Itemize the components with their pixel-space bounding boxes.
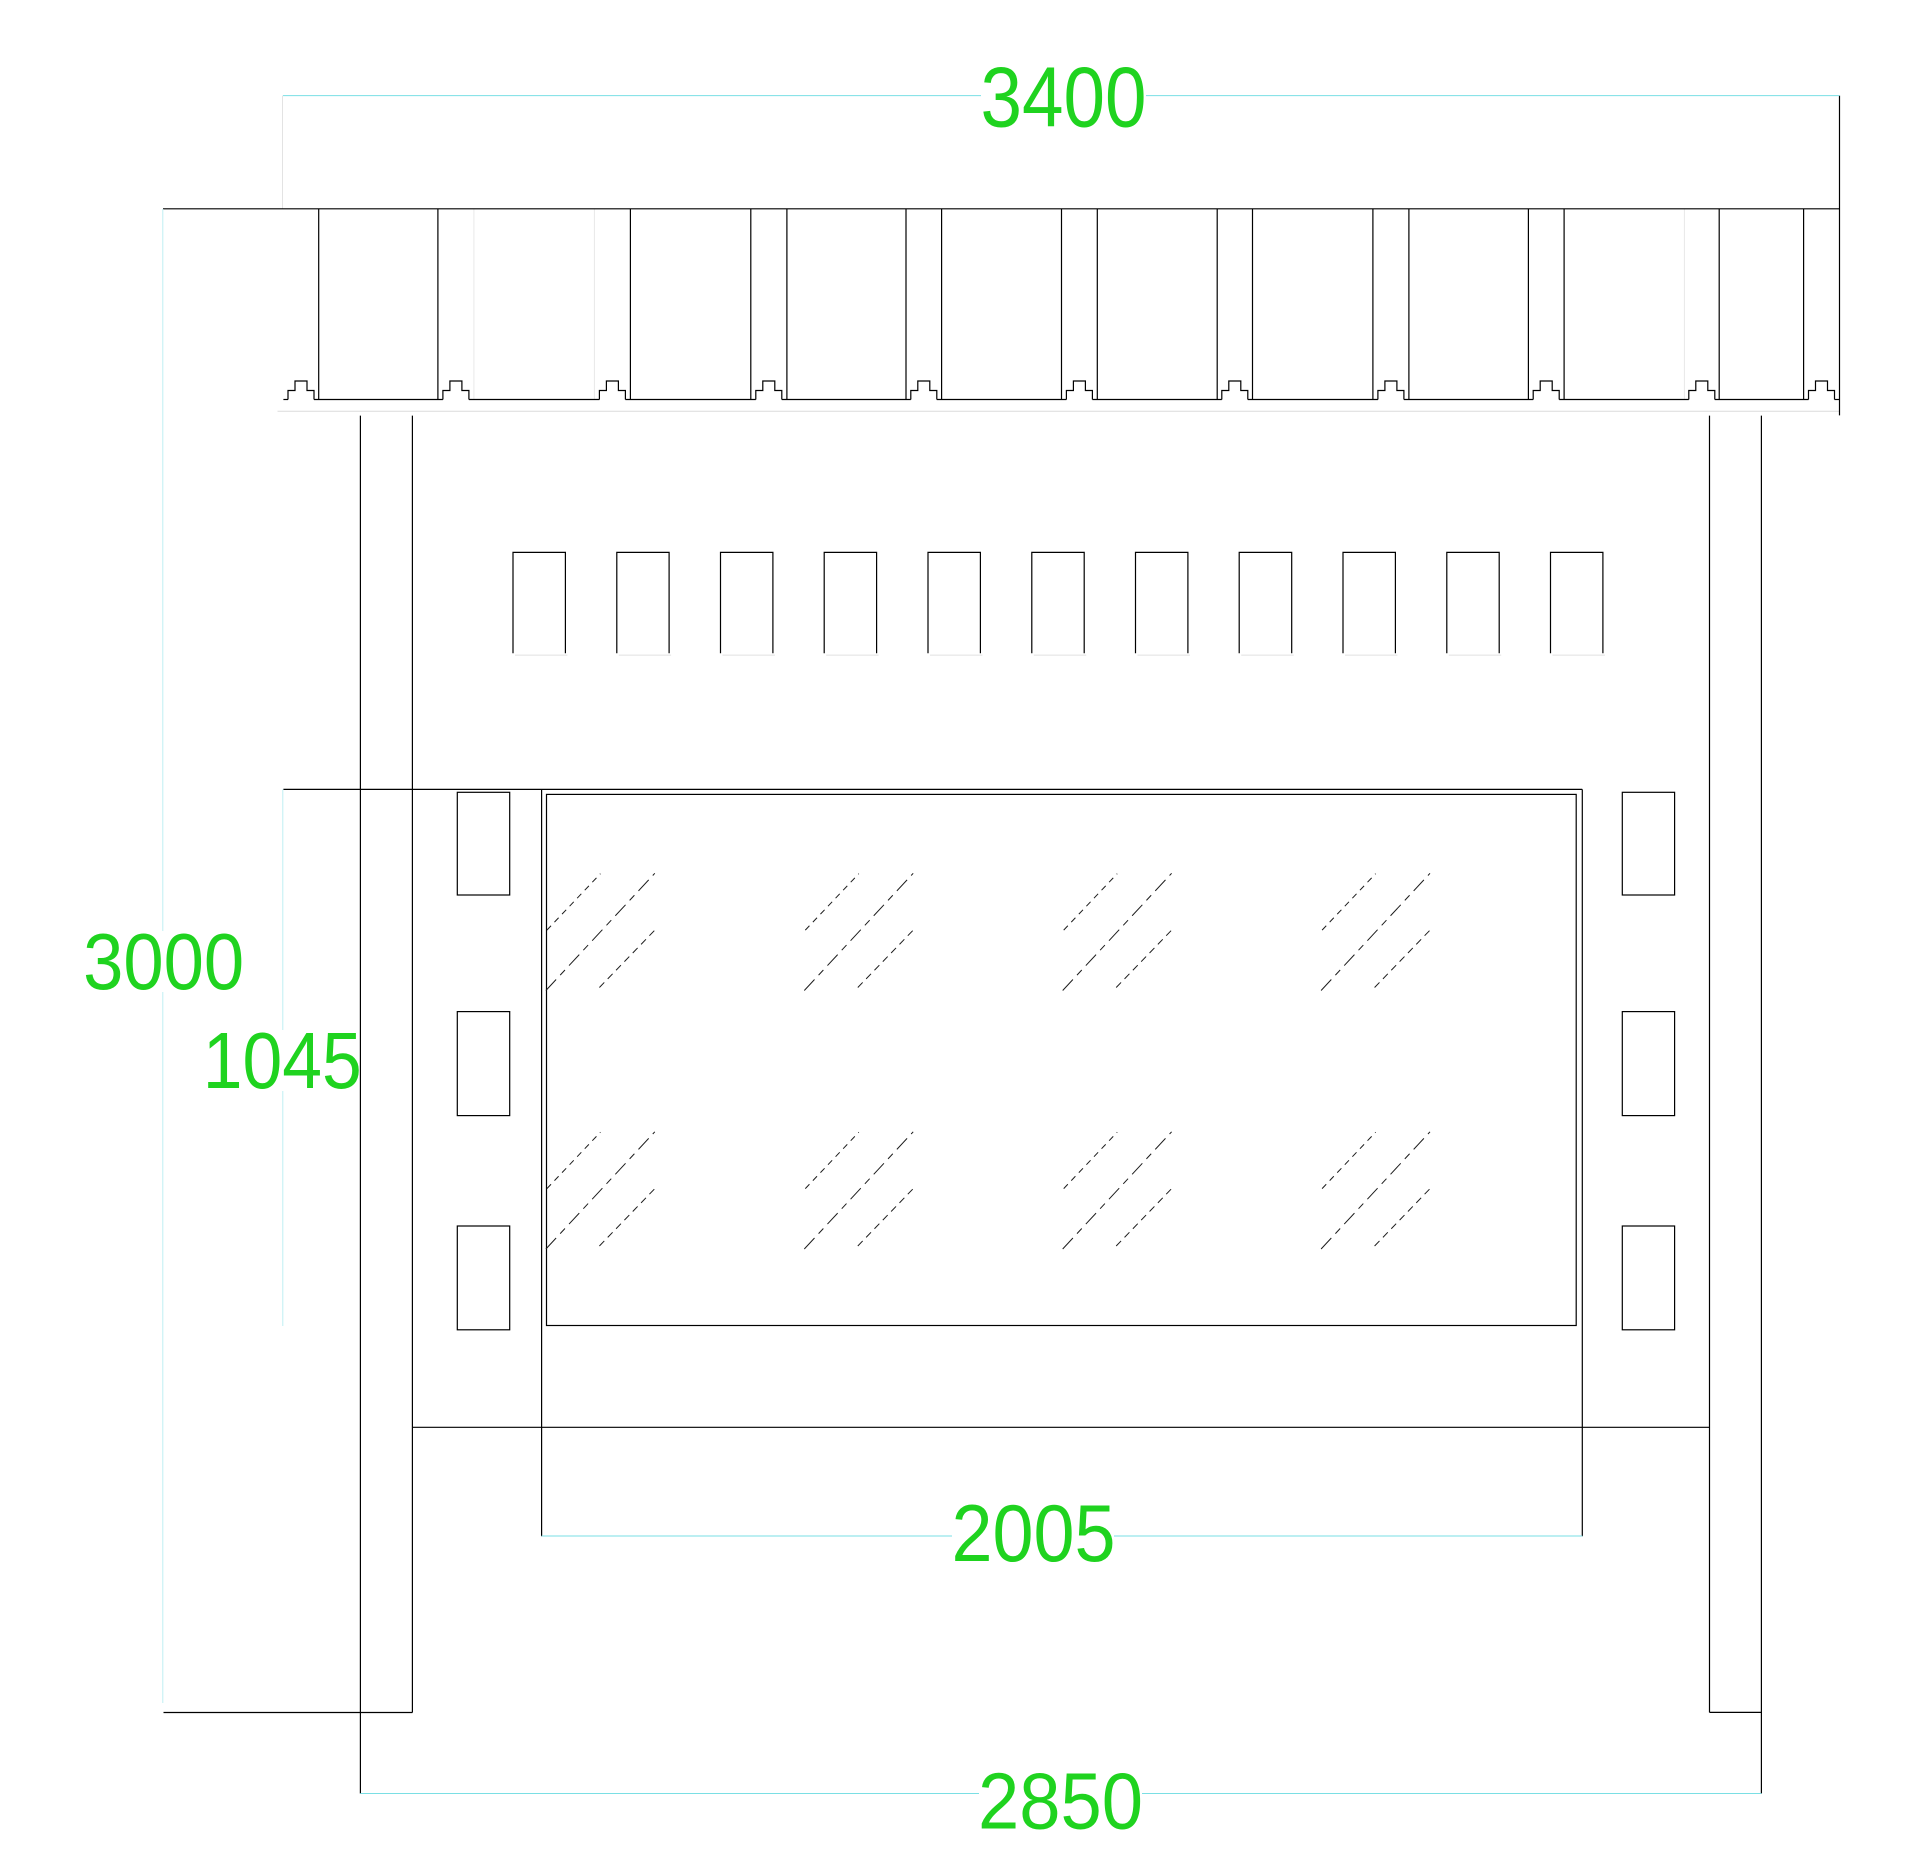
- svg-text:3000: 3000: [83, 917, 244, 1006]
- svg-text:3400: 3400: [981, 51, 1147, 146]
- svg-text:2005: 2005: [952, 1489, 1116, 1579]
- svg-text:2850: 2850: [978, 1756, 1143, 1845]
- svg-text:1045: 1045: [203, 1016, 362, 1105]
